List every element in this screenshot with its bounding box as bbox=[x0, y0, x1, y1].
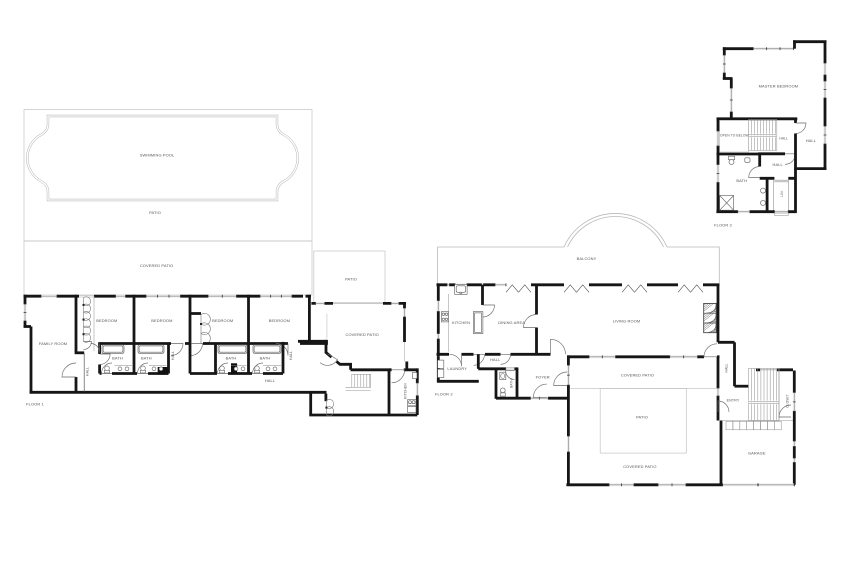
svg-text:CLOSET: CLOSET bbox=[786, 394, 790, 407]
svg-text:COVERED PATIO: COVERED PATIO bbox=[346, 332, 379, 337]
svg-text:BALCONY: BALCONY bbox=[577, 256, 597, 261]
svg-text:OPEN TO BELOW: OPEN TO BELOW bbox=[720, 133, 750, 137]
svg-text:HALL: HALL bbox=[171, 351, 175, 360]
svg-text:HALL: HALL bbox=[490, 357, 501, 362]
svg-text:BATH: BATH bbox=[736, 178, 747, 183]
svg-text:ENTRY: ENTRY bbox=[727, 399, 740, 403]
svg-text:SWIMMING POOL: SWIMMING POOL bbox=[140, 153, 175, 158]
svg-text:HALL: HALL bbox=[725, 364, 729, 373]
svg-text:DINING AREA: DINING AREA bbox=[498, 320, 525, 325]
svg-text:LAUNDRY: LAUNDRY bbox=[447, 366, 467, 371]
svg-text:FOYER: FOYER bbox=[536, 375, 550, 380]
svg-text:BEDROOM: BEDROOM bbox=[151, 318, 172, 323]
svg-text:PATIO: PATIO bbox=[636, 414, 648, 419]
svg-text:MASTER BEDROOM: MASTER BEDROOM bbox=[759, 84, 799, 89]
svg-text:BATH: BATH bbox=[226, 355, 237, 360]
svg-text:FAMILY ROOM: FAMILY ROOM bbox=[39, 341, 67, 346]
svg-text:BATH: BATH bbox=[260, 355, 271, 360]
svg-text:BEDROOM: BEDROOM bbox=[269, 318, 290, 323]
svg-text:HALL: HALL bbox=[779, 137, 788, 141]
svg-text:HALL: HALL bbox=[773, 162, 784, 167]
svg-text:BATH: BATH bbox=[509, 379, 513, 388]
svg-text:PATIO: PATIO bbox=[345, 277, 357, 282]
svg-text:LIN.: LIN. bbox=[780, 190, 784, 196]
svg-text:COVERED PATIO: COVERED PATIO bbox=[621, 373, 654, 378]
svg-text:BATH: BATH bbox=[141, 355, 152, 360]
svg-text:BATH: BATH bbox=[112, 355, 123, 360]
svg-text:FLOOR 3: FLOOR 3 bbox=[714, 222, 732, 227]
svg-text:HALL: HALL bbox=[806, 138, 817, 143]
svg-text:GARAGE: GARAGE bbox=[748, 451, 766, 456]
svg-text:HALL: HALL bbox=[86, 367, 90, 376]
svg-text:COVERED PATIO: COVERED PATIO bbox=[623, 464, 656, 469]
svg-text:PATIO: PATIO bbox=[149, 210, 161, 215]
svg-text:COVERED PATIO: COVERED PATIO bbox=[140, 263, 173, 268]
svg-text:LIVING ROOM: LIVING ROOM bbox=[613, 318, 641, 323]
svg-text:FLOOR 2: FLOOR 2 bbox=[435, 391, 453, 396]
svg-text:KITCHEN: KITCHEN bbox=[404, 383, 408, 399]
svg-text:HALL: HALL bbox=[289, 351, 293, 360]
svg-text:FLOOR 1: FLOOR 1 bbox=[26, 401, 44, 406]
svg-text:HALL: HALL bbox=[265, 378, 276, 383]
svg-text:BEDROOM: BEDROOM bbox=[212, 318, 233, 323]
svg-text:BEDROOM: BEDROOM bbox=[96, 318, 117, 323]
svg-text:KITCHEN: KITCHEN bbox=[452, 320, 470, 325]
